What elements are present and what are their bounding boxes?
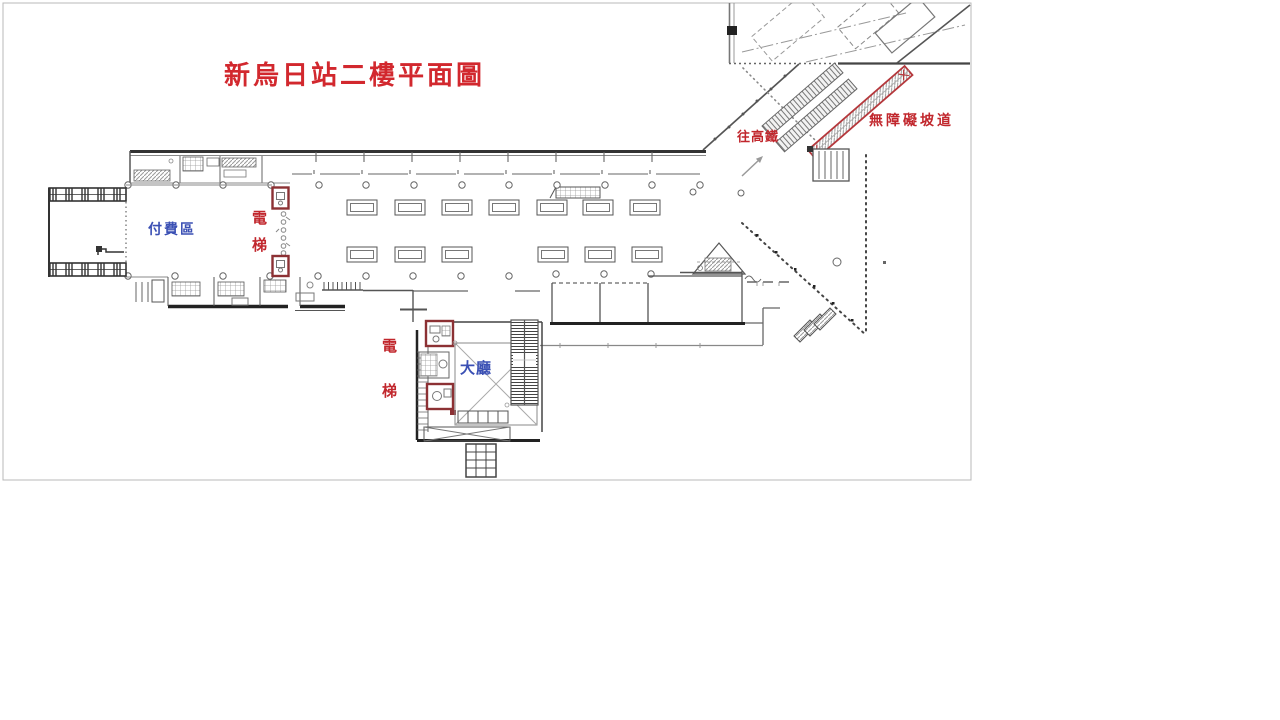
plan-title: 新烏日站二樓平面圖 (224, 62, 485, 88)
label-accessible-ramp: 無障礙坡道 (869, 113, 954, 127)
label-paid-area: 付費區 (148, 222, 196, 236)
floor-plan-page: 新烏日站二樓平面圖 往高鐵 無障礙坡道 付費區 電梯 電梯 大廳 (0, 0, 1280, 720)
label-elevator-lobby: 電梯 (381, 338, 396, 428)
walkway-mouth-stairs (807, 146, 849, 181)
floor-plan-drawing (0, 0, 1280, 720)
elevator-box-lobby-1 (426, 321, 453, 346)
label-elevator-concourse: 電梯 (251, 210, 266, 264)
elevator-box-concourse-2 (273, 256, 289, 276)
label-hall: 大廳 (460, 361, 492, 376)
lobby-escalator (511, 320, 538, 405)
elevator-box-concourse-1 (273, 188, 289, 209)
label-to-hsr: 往高鐵 (737, 130, 779, 143)
